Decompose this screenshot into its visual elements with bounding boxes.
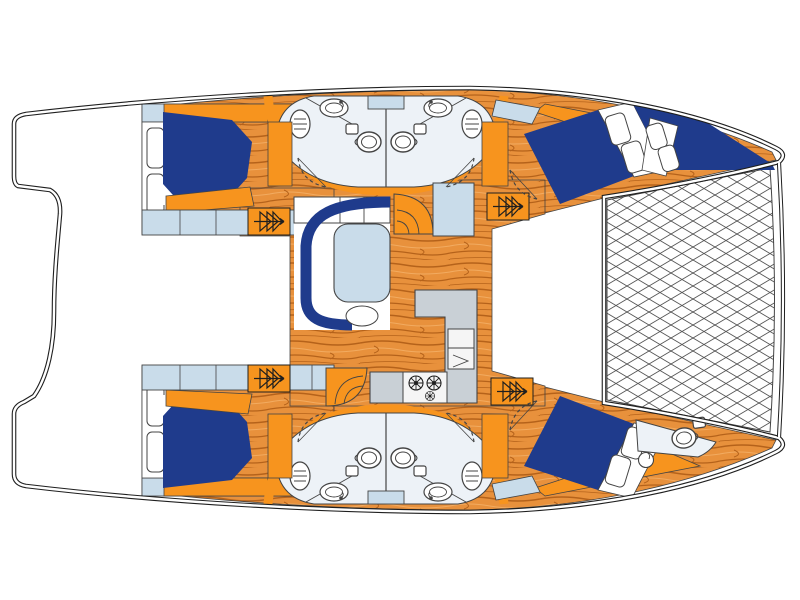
- stbd-wardrobe: [268, 414, 292, 478]
- steps-stbd-fwd: [491, 378, 533, 405]
- deck-plan-canvas: [0, 0, 800, 600]
- pillow: [147, 174, 164, 214]
- pillow: [147, 128, 164, 168]
- stbd-aft-cabinet-row: [142, 365, 334, 390]
- catamaran-deck-plan: [0, 0, 800, 600]
- pillow: [147, 386, 164, 426]
- steps-stbd-aft: [248, 365, 290, 392]
- deck-hatch: [368, 491, 404, 504]
- saloon-locker: [433, 183, 474, 236]
- pillow: [147, 432, 164, 472]
- trampoline-net: [607, 168, 775, 432]
- steps-port-aft: [248, 208, 290, 235]
- steps-port-fwd: [487, 193, 529, 220]
- saloon-stool: [346, 306, 378, 326]
- saloon-table: [334, 224, 390, 302]
- port-wardrobe: [268, 122, 292, 186]
- stbd-fwd-wardrobe: [482, 414, 508, 478]
- port-fwd-wardrobe: [482, 122, 508, 186]
- deck-hatch: [368, 96, 404, 109]
- galley-sink: [448, 329, 474, 369]
- crew-head-basin: [639, 453, 654, 468]
- galley-stove: [403, 372, 447, 403]
